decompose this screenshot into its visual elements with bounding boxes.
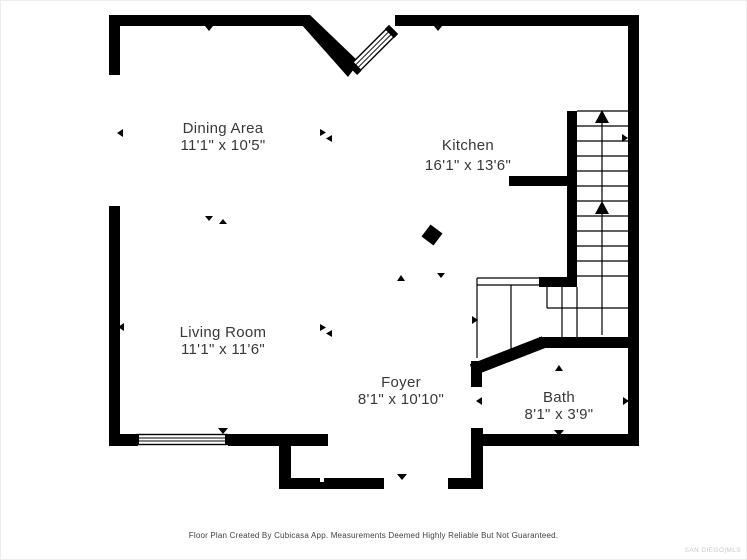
wall-entry-top xyxy=(228,434,328,446)
window-entry-cap-left xyxy=(135,434,139,445)
entry-door-jamb-notch xyxy=(320,478,324,482)
window-diagonal-pane-line xyxy=(358,34,392,68)
marker-triangle-entry-door xyxy=(397,474,407,480)
room-label-dining: Dining Area 11'1" x 10'5" xyxy=(180,120,265,154)
marker-triangle-top-wall-right xyxy=(434,26,442,31)
marker-triangle-dining-divider xyxy=(326,135,332,142)
floor-plan-page: Dining Area 11'1" x 10'5" Kitchen 16'1" … xyxy=(0,0,747,560)
marker-triangle-bath-door xyxy=(476,397,482,405)
footer-disclaimer: Floor Plan Created By Cubicasa App. Meas… xyxy=(1,531,746,540)
wall-top-right xyxy=(395,15,639,26)
marker-triangle-bath-top xyxy=(555,365,563,371)
floor-plan-canvas: Dining Area 11'1" x 10'5" Kitchen 16'1" … xyxy=(1,1,747,560)
stair-arrow-head xyxy=(595,201,609,214)
marker-triangle-living-divider xyxy=(205,216,213,221)
window-entry-body xyxy=(137,435,227,445)
room-name: Bath xyxy=(543,389,575,406)
wall-bath-bottom xyxy=(471,434,639,446)
window-diagonal-body xyxy=(353,28,395,70)
mls-watermark: SAN DIEGO|MLS xyxy=(685,547,741,554)
marker-triangle-living-divider xyxy=(219,219,227,224)
marker-triangle-foyer-divider xyxy=(397,275,405,281)
room-name: Kitchen xyxy=(442,137,494,154)
marker-triangle-entry-window xyxy=(218,428,228,434)
room-name: Living Room xyxy=(180,324,267,341)
wall-left-upper xyxy=(109,15,120,75)
wall-entry-bottom-left xyxy=(279,478,384,489)
column-post xyxy=(421,224,442,245)
wall-stair-left xyxy=(567,111,577,287)
room-label-bath: Bath 8'1" x 3'9" xyxy=(525,389,594,423)
marker-triangle-foyer-divider xyxy=(437,273,445,278)
marker-triangle-left-wall-opening xyxy=(117,129,123,137)
window-diagonal xyxy=(348,25,398,75)
wall-bath-diagonal xyxy=(472,342,544,370)
wall-bath-top xyxy=(539,337,639,348)
room-dims: 8'1" x 10'10" xyxy=(358,391,444,408)
marker-triangle-dining-divider xyxy=(320,129,326,136)
room-dims: 8'1" x 3'9" xyxy=(525,406,594,423)
window-entry-cap-right xyxy=(225,434,229,445)
stair-arrow-head xyxy=(595,110,609,123)
wall-bottom-left xyxy=(109,434,138,446)
room-dims: 11'1" x 10'5" xyxy=(180,137,265,154)
wall-left-main xyxy=(109,206,120,446)
window-diagonal-pane-line xyxy=(356,31,390,65)
marker-triangle-living-right-divider xyxy=(320,324,326,331)
room-label-kitchen: Kitchen 16'1" x 13'6" xyxy=(425,137,511,174)
room-dims: 16'1" x 13'6" xyxy=(425,157,511,174)
room-label-foyer: Foyer 8'1" x 10'10" xyxy=(358,374,444,408)
marker-triangle-top-wall-left xyxy=(205,26,213,31)
wall-notch-diagonal xyxy=(293,15,359,77)
wall-top-left xyxy=(109,15,303,26)
room-dims: 11'1" x 11'6" xyxy=(181,341,265,358)
staircase xyxy=(547,110,628,337)
wall-stair-stub xyxy=(539,277,577,287)
wall-kitchen-stub xyxy=(509,176,569,186)
room-name: Dining Area xyxy=(183,120,264,137)
marker-triangle-living-right-divider xyxy=(326,330,332,337)
wall-right xyxy=(628,15,639,446)
window-entry xyxy=(135,434,229,445)
room-name: Foyer xyxy=(381,374,421,391)
room-label-living: Living Room 11'1" x 11'6" xyxy=(180,324,267,358)
stair-direction-arrow xyxy=(595,110,609,335)
